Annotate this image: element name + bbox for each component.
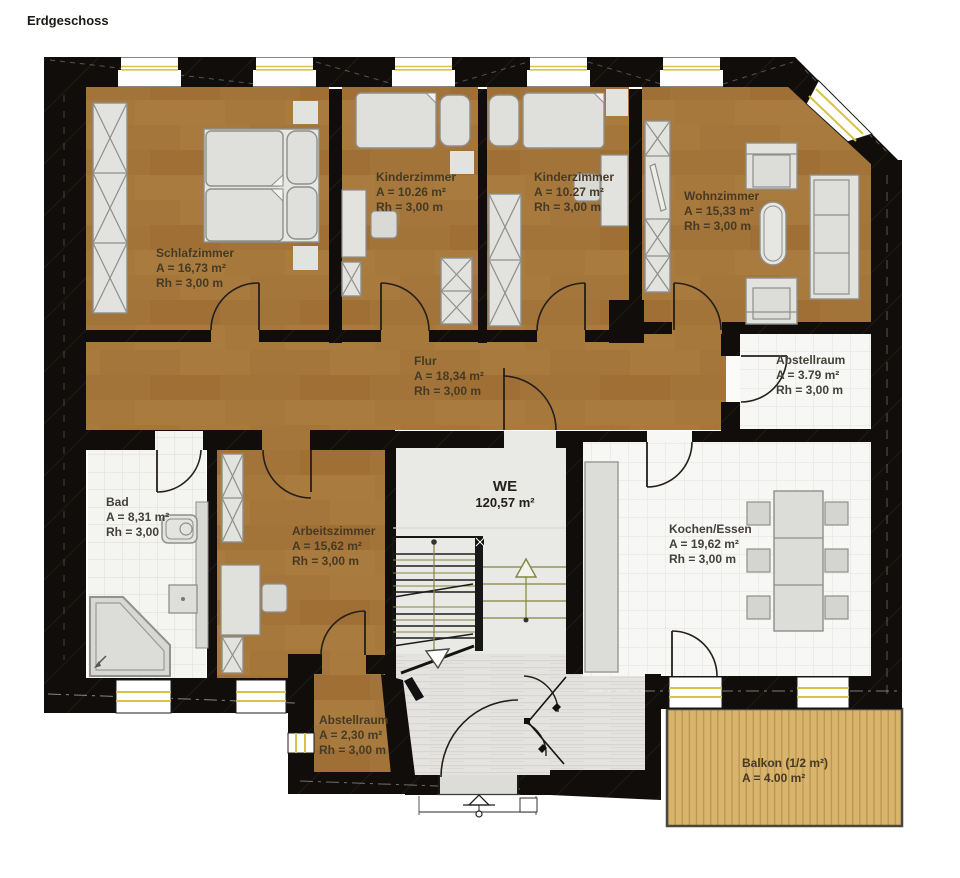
svg-text:A = 8,31 m²: A = 8,31 m² [106, 510, 169, 524]
svg-text:A = 3.79 m²: A = 3.79 m² [776, 368, 839, 382]
svg-text:Kinderzimmer: Kinderzimmer [534, 170, 614, 184]
svg-text:Kinderzimmer: Kinderzimmer [376, 170, 456, 184]
svg-text:Flur: Flur [414, 354, 437, 368]
svg-text:A = 18,34 m²: A = 18,34 m² [414, 369, 484, 383]
svg-text:Rh = 3,00 m: Rh = 3,00 m [684, 219, 751, 233]
svg-text:A = 4.00 m²: A = 4.00 m² [742, 771, 805, 785]
svg-text:Rh = 3,00 m: Rh = 3,00 m [776, 383, 843, 397]
svg-text:Wohnzimmer: Wohnzimmer [684, 189, 759, 203]
svg-text:Abstellraum: Abstellraum [776, 353, 845, 367]
svg-text:Rh = 3,00 m: Rh = 3,00 m [292, 554, 359, 568]
svg-text:Rh = 3,00: Rh = 3,00 [106, 525, 159, 539]
svg-text:Schlafzimmer: Schlafzimmer [156, 246, 234, 260]
svg-text:Rh = 3,00 m: Rh = 3,00 m [414, 384, 481, 398]
svg-text:Balkon (1/2 m²): Balkon (1/2 m²) [742, 756, 828, 770]
svg-text:Arbeitszimmer: Arbeitszimmer [292, 524, 376, 538]
svg-text:A = 16,73 m²: A = 16,73 m² [156, 261, 226, 275]
svg-text:Erdgeschoss: Erdgeschoss [27, 13, 109, 28]
svg-text:Rh = 3,00 m: Rh = 3,00 m [319, 743, 386, 757]
svg-text:Rh = 3,00 m: Rh = 3,00 m [376, 200, 443, 214]
svg-text:Bad: Bad [106, 495, 129, 509]
svg-text:A = 2,30 m²: A = 2,30 m² [319, 728, 382, 742]
svg-text:A = 15,62 m²: A = 15,62 m² [292, 539, 362, 553]
svg-text:A = 10.26 m²: A = 10.26 m² [376, 185, 446, 199]
svg-text:Rh = 3,00 m: Rh = 3,00 m [534, 200, 601, 214]
svg-text:WE: WE [493, 478, 517, 495]
svg-text:Kochen/Essen: Kochen/Essen [669, 522, 752, 536]
svg-text:120,57 m²: 120,57 m² [475, 495, 535, 510]
svg-text:Rh = 3,00 m: Rh = 3,00 m [156, 276, 223, 290]
svg-text:Abstellraum: Abstellraum [319, 713, 388, 727]
svg-text:A = 19,62 m²: A = 19,62 m² [669, 537, 739, 551]
svg-text:A = 15,33 m²: A = 15,33 m² [684, 204, 754, 218]
svg-text:A = 10.27 m²: A = 10.27 m² [534, 185, 604, 199]
svg-text:Rh = 3,00 m: Rh = 3,00 m [669, 552, 736, 566]
